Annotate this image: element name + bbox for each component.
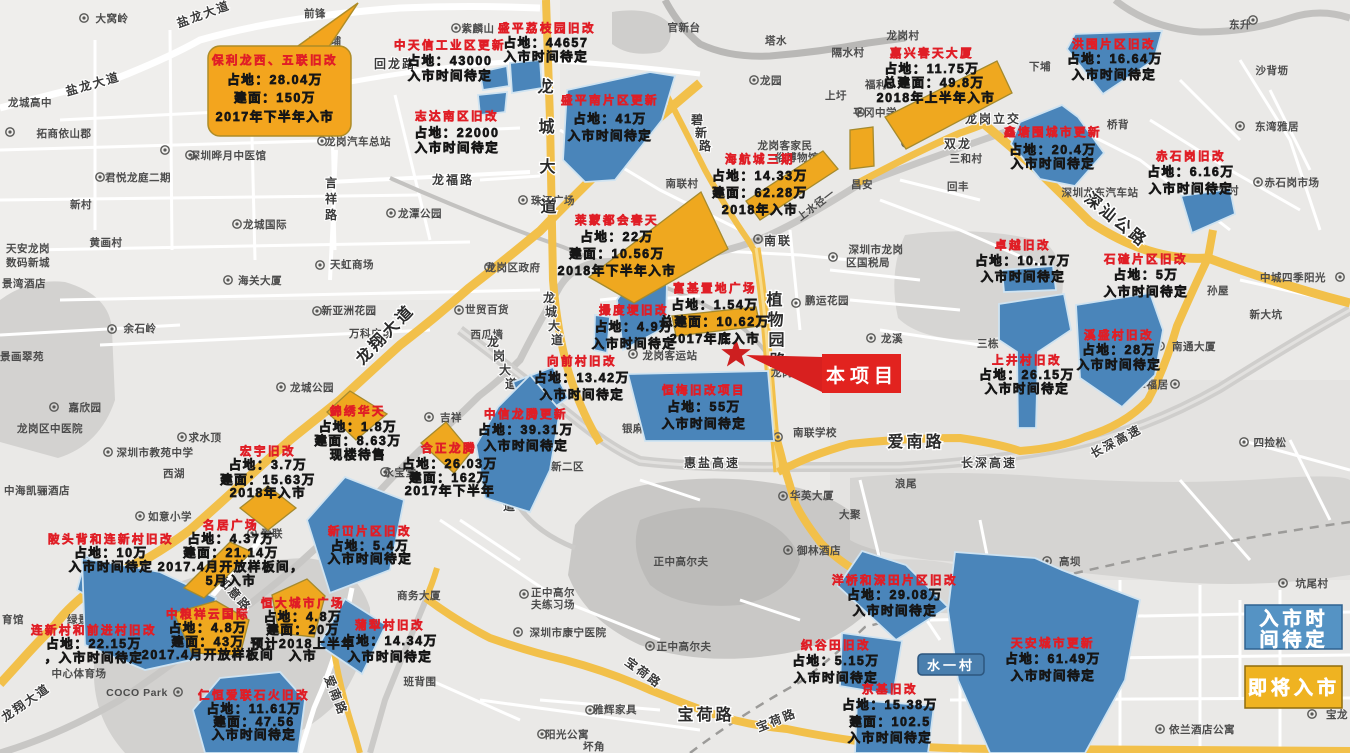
svg-text:吉祥: 吉祥 xyxy=(440,411,462,424)
svg-text:占地：26.03万: 占地：26.03万 xyxy=(402,456,498,471)
svg-text:2017年下半年: 2017年下半年 xyxy=(405,483,496,498)
svg-text:占地：44657: 占地：44657 xyxy=(503,35,588,50)
svg-text:恒梅旧改项目: 恒梅旧改项目 xyxy=(662,383,746,397)
svg-text:岗: 岗 xyxy=(493,349,507,363)
svg-text:世贸百货: 世贸百货 xyxy=(465,303,509,316)
svg-text:溪盛村旧改: 溪盛村旧改 xyxy=(1084,328,1154,342)
svg-text:双龙: 双龙 xyxy=(944,136,972,151)
svg-text:宝龙: 宝龙 xyxy=(1326,708,1348,721)
svg-text:占地：22万: 占地：22万 xyxy=(580,229,654,244)
svg-text:2018年入市: 2018年入市 xyxy=(722,202,799,217)
svg-text:入市时间待定: 入市时间待定 xyxy=(1104,284,1189,299)
svg-text:深圳晔月中医馆: 深圳晔月中医馆 xyxy=(190,149,267,162)
svg-text:占地：4.9万: 占地：4.9万 xyxy=(595,319,674,334)
svg-text:依兰酒店公寓: 依兰酒店公寓 xyxy=(1169,723,1235,736)
svg-text:求水顶: 求水顶 xyxy=(189,431,222,444)
svg-text:余石岭: 余石岭 xyxy=(123,322,157,335)
svg-text:大: 大 xyxy=(499,362,513,377)
svg-text:四捡松: 四捡松 xyxy=(1254,436,1287,449)
svg-text:建面：15.63万: 建面：15.63万 xyxy=(220,472,316,487)
svg-text:占地：14.33万: 占地：14.33万 xyxy=(712,168,808,183)
svg-text:海关大厦: 海关大厦 xyxy=(238,274,282,287)
svg-text:占地：61.49万: 占地：61.49万 xyxy=(1005,651,1101,666)
svg-text:建面：8.63万: 建面：8.63万 xyxy=(314,433,401,448)
svg-text:中海凯骊酒店: 中海凯骊酒店 xyxy=(4,484,70,497)
svg-text:三栋: 三栋 xyxy=(977,337,999,350)
svg-text:鹏运花园: 鹏运花园 xyxy=(805,294,849,307)
svg-text:盛平荔枝园旧改: 盛平荔枝园旧改 xyxy=(498,21,596,35)
svg-text:建面：10.56万: 建面：10.56万 xyxy=(569,246,665,261)
svg-text:龙: 龙 xyxy=(543,290,557,305)
svg-text:嘉欣园: 嘉欣园 xyxy=(68,401,102,414)
svg-text:建面：102.5: 建面：102.5 xyxy=(849,714,931,729)
svg-text:拓商依山郡: 拓商依山郡 xyxy=(37,127,92,140)
svg-text:占地：11.61万: 占地：11.61万 xyxy=(207,701,302,716)
svg-text:东升: 东升 xyxy=(1229,18,1251,31)
svg-text:建面：162万: 建面：162万 xyxy=(409,470,491,485)
svg-text:占地：5万: 占地：5万 xyxy=(1114,267,1179,282)
svg-text:占地：5.4万: 占地：5.4万 xyxy=(331,538,410,553)
svg-text:龙城公园: 龙城公园 xyxy=(289,381,334,394)
svg-text:富基置地广场: 富基置地广场 xyxy=(673,281,757,295)
svg-text:龙岗客家民: 龙岗客家民 xyxy=(757,139,813,152)
svg-text:中粮祥云国际: 中粮祥云国际 xyxy=(166,607,250,621)
svg-text:建面：20万: 建面：20万 xyxy=(266,622,340,637)
svg-text:中城四季阳光: 中城四季阳光 xyxy=(1260,271,1326,284)
svg-text:入市时间待定: 入市时间待定 xyxy=(328,551,413,566)
svg-text:入市时间待定: 入市时间待定 xyxy=(69,559,154,574)
svg-text:撮度埂旧改: 撮度埂旧改 xyxy=(599,303,669,317)
svg-text:坑尾村: 坑尾村 xyxy=(1296,577,1329,590)
svg-text:城: 城 xyxy=(545,304,559,319)
svg-text:入市时间待定: 入市时间待定 xyxy=(540,387,625,402)
svg-text:龙: 龙 xyxy=(487,334,501,349)
svg-text:龙溪: 龙溪 xyxy=(880,332,903,345)
svg-text:西湖: 西湖 xyxy=(163,467,185,480)
svg-text:嘉兴春天大厦: 嘉兴春天大厦 xyxy=(889,46,974,60)
svg-text:莱蒙都会春天: 莱蒙都会春天 xyxy=(575,213,659,227)
svg-text:正中高尔夫: 正中高尔夫 xyxy=(657,640,712,653)
svg-text:景湾酒店: 景湾酒店 xyxy=(1,277,46,290)
svg-text:夫练习场: 夫练习场 xyxy=(531,598,575,611)
svg-text:盛平南片区更新: 盛平南片区更新 xyxy=(561,93,659,107)
svg-text:入市时间待定: 入市时间待定 xyxy=(662,416,747,431)
svg-text:惠盐高速: 惠盐高速 xyxy=(684,455,740,470)
svg-text:入市时间待定: 入市时间待定 xyxy=(484,438,569,453)
svg-text:龙福路: 龙福路 xyxy=(432,172,474,187)
svg-text:景画翠苑: 景画翠苑 xyxy=(0,350,44,363)
svg-text:君悦龙庭二期: 君悦龙庭二期 xyxy=(105,171,171,184)
svg-text:正中高尔: 正中高尔 xyxy=(531,586,575,599)
svg-text:陂头背和连新村旧改: 陂头背和连新村旧改 xyxy=(48,532,174,546)
svg-text:占地：10.17万: 占地：10.17万 xyxy=(975,253,1071,268)
svg-text:珠江广场: 珠江广场 xyxy=(531,194,575,207)
svg-text:入市时间待定: 入市时间待定 xyxy=(981,269,1066,284)
svg-text:占地：4.37万: 占地：4.37万 xyxy=(187,531,274,546)
svg-text:高坝: 高坝 xyxy=(1059,555,1081,568)
svg-text:入市时间待定: 入市时间待定 xyxy=(408,68,493,83)
svg-text:织谷田旧改: 织谷田旧改 xyxy=(801,638,871,652)
svg-text:京基旧改: 京基旧改 xyxy=(862,682,918,696)
svg-text:如意小学: 如意小学 xyxy=(148,510,192,523)
svg-text:大聚: 大聚 xyxy=(839,508,861,521)
svg-text:总建面：10.62万: 总建面：10.62万 xyxy=(660,314,770,329)
svg-text:入市时间待定: 入市时间待定 xyxy=(1011,668,1096,683)
svg-text:2018年上半年入市: 2018年上半年入市 xyxy=(877,90,996,105)
svg-text:龙城国际: 龙城国际 xyxy=(242,218,287,231)
svg-text:东湾雅居: 东湾雅居 xyxy=(1255,120,1299,133)
svg-text:正中高尔夫: 正中高尔夫 xyxy=(654,555,709,568)
svg-text:入市时间待定: 入市时间待定 xyxy=(1077,357,1162,372)
svg-text:大窝岭: 大窝岭 xyxy=(96,12,129,25)
svg-text:赤石岗市场: 赤石岗市场 xyxy=(1265,176,1320,189)
svg-text:入市时间待定: 入市时间待定 xyxy=(1011,156,1096,171)
svg-text:园: 园 xyxy=(768,331,787,349)
svg-text:2018年入市: 2018年入市 xyxy=(230,485,307,500)
svg-text:新亚洲花园: 新亚洲花园 xyxy=(322,304,377,317)
svg-text:爱南路: 爱南路 xyxy=(887,432,944,451)
svg-text:路: 路 xyxy=(325,207,339,222)
svg-text:连新村和前进村旧改: 连新村和前进村旧改 xyxy=(31,623,157,637)
svg-text:占地：6.16万: 占地：6.16万 xyxy=(1147,164,1234,179)
svg-text:占地：22.15万: 占地：22.15万 xyxy=(46,636,142,651)
svg-text:道: 道 xyxy=(551,332,565,347)
svg-text:言: 言 xyxy=(325,175,339,190)
svg-text:上圩: 上圩 xyxy=(825,89,847,102)
svg-text:占地：43000: 占地：43000 xyxy=(407,53,492,68)
svg-text:黄画村: 黄画村 xyxy=(90,236,123,249)
svg-text:数码新城: 数码新城 xyxy=(5,256,50,269)
svg-text:占地：14.34万: 占地：14.34万 xyxy=(342,633,438,648)
svg-text:龙岗汽车总站: 龙岗汽车总站 xyxy=(324,135,391,148)
svg-text:龙岗区中医院: 龙岗区中医院 xyxy=(16,422,83,435)
svg-text:深圳市龙岗: 深圳市龙岗 xyxy=(849,243,904,256)
svg-text:入市时间待定: 入市时间待定 xyxy=(504,49,589,64)
svg-text:龙岗区政府: 龙岗区政府 xyxy=(485,261,541,274)
svg-text:入市时间待定: 入市时间待定 xyxy=(415,140,500,155)
svg-text:名居广场: 名居广场 xyxy=(203,518,259,532)
svg-text:班背围: 班背围 xyxy=(404,675,437,688)
svg-text:区国税局: 区国税局 xyxy=(846,256,890,269)
svg-text:宝荷路: 宝荷路 xyxy=(677,705,734,724)
svg-text:占地：5.15万: 占地：5.15万 xyxy=(792,653,879,668)
svg-text:占地：39.31万: 占地：39.31万 xyxy=(478,422,574,437)
svg-text:入市时间待定: 入市时间待定 xyxy=(592,336,677,351)
svg-text:占地：29.08万: 占地：29.08万 xyxy=(847,587,943,602)
svg-text:占地：3.7万: 占地：3.7万 xyxy=(229,457,308,472)
svg-text:入市时: 入市时 xyxy=(1259,607,1328,630)
svg-text:卓越旧改: 卓越旧改 xyxy=(995,238,1051,252)
svg-text:志达南区旧改: 志达南区旧改 xyxy=(415,109,499,123)
svg-text:昌安: 昌安 xyxy=(851,178,873,191)
svg-text:碧: 碧 xyxy=(690,112,705,127)
svg-text:坏角: 坏角 xyxy=(583,740,605,753)
svg-text:即将入市: 即将入市 xyxy=(1248,676,1340,699)
svg-text:入市时间待定: 入市时间待定 xyxy=(985,381,1070,396)
svg-text:龙潭公园: 龙潭公园 xyxy=(397,207,442,220)
svg-text:御林酒店: 御林酒店 xyxy=(796,544,841,557)
svg-text:深圳市康宁医院: 深圳市康宁医院 xyxy=(530,626,607,639)
svg-text:占地：13.42万: 占地：13.42万 xyxy=(534,370,630,385)
svg-text:占地：26.15万: 占地：26.15万 xyxy=(979,367,1075,382)
svg-text:占地：28万: 占地：28万 xyxy=(1082,342,1156,357)
svg-text:占地：11.75万: 占地：11.75万 xyxy=(885,61,980,76)
svg-text:赤石岗旧改: 赤石岗旧改 xyxy=(1156,149,1226,163)
svg-text:紫麟山: 紫麟山 xyxy=(462,22,495,35)
svg-text:仁恒爱联石火旧改: 仁恒爱联石火旧改 xyxy=(198,688,310,702)
svg-text:入市时间待定: 入市时间待定 xyxy=(848,730,933,745)
svg-text:占地：15.38万: 占地：15.38万 xyxy=(842,697,938,712)
svg-text:大: 大 xyxy=(548,318,562,333)
svg-text:建面：21.14万: 建面：21.14万 xyxy=(183,545,279,560)
svg-text:路: 路 xyxy=(699,138,713,153)
svg-text:育馆: 育馆 xyxy=(2,613,24,626)
svg-text:海航城三期: 海航城三期 xyxy=(725,152,795,166)
svg-text:入市时间待定: 入市时间待定 xyxy=(794,670,879,685)
svg-text:入市: 入市 xyxy=(289,648,317,663)
svg-text:中心体育场: 中心体育场 xyxy=(52,667,107,680)
svg-text:占地：20.4万: 占地：20.4万 xyxy=(1009,142,1096,157)
svg-text:占地：55万: 占地：55万 xyxy=(667,399,741,414)
svg-text:孙屋: 孙屋 xyxy=(1207,284,1229,297)
svg-text:2017年下半年入市: 2017年下半年入市 xyxy=(216,109,335,124)
svg-text:COCO Park: COCO Park xyxy=(106,687,168,699)
svg-text:回丰: 回丰 xyxy=(947,180,969,193)
svg-text:鑫塘围城市更新: 鑫塘围城市更新 xyxy=(1003,125,1102,139)
svg-text:，入市时间待定: ，入市时间待定 xyxy=(45,650,144,665)
svg-text:大: 大 xyxy=(539,157,558,176)
svg-text:天虹商场: 天虹商场 xyxy=(330,258,374,271)
svg-text:入市时间待定: 入市时间待定 xyxy=(348,649,433,664)
svg-text:入市时间待定: 入市时间待定 xyxy=(568,128,653,143)
svg-text:宏宇旧改: 宏宇旧改 xyxy=(240,444,296,458)
svg-text:隔水村: 隔水村 xyxy=(832,46,865,59)
svg-text:中天信工业区更新: 中天信工业区更新 xyxy=(394,38,506,52)
svg-text:入市时间待定: 入市时间待定 xyxy=(1072,67,1157,82)
svg-text:龙园: 龙园 xyxy=(759,74,782,87)
svg-text:官新台: 官新台 xyxy=(668,21,701,34)
svg-text:建面：150万: 建面：150万 xyxy=(234,90,316,105)
svg-text:入市时间待定: 入市时间待定 xyxy=(853,603,938,618)
svg-text:南联: 南联 xyxy=(764,233,792,248)
svg-text:洪围片区旧改: 洪围片区旧改 xyxy=(1072,37,1156,51)
svg-text:祥: 祥 xyxy=(325,191,339,206)
svg-text:上井村旧改: 上井村旧改 xyxy=(992,353,1062,367)
svg-text:龙城高中: 龙城高中 xyxy=(7,96,52,109)
svg-text:南通大厦: 南通大厦 xyxy=(1172,340,1216,353)
svg-text:占地：1.54万: 占地：1.54万 xyxy=(671,297,758,312)
svg-text:入市时间待定: 入市时间待定 xyxy=(212,727,297,742)
svg-text:2017.4月开放样板间，: 2017.4月开放样板间， xyxy=(158,559,305,574)
svg-text:占地：41万: 占地：41万 xyxy=(573,111,647,126)
svg-text:占地：4.8万: 占地：4.8万 xyxy=(264,609,343,624)
svg-text:三和村: 三和村 xyxy=(950,152,983,165)
svg-text:南联学校: 南联学校 xyxy=(793,426,837,439)
svg-text:石碴片区旧改: 石碴片区旧改 xyxy=(1103,252,1188,266)
svg-text:南联村: 南联村 xyxy=(666,177,699,190)
svg-text:入市时间待定: 入市时间待定 xyxy=(1149,181,1234,196)
svg-text:恒大城市广场: 恒大城市广场 xyxy=(261,596,345,610)
svg-text:新: 新 xyxy=(695,125,709,140)
svg-text:物: 物 xyxy=(767,310,786,329)
svg-text:洋桥和深田片区旧改: 洋桥和深田片区旧改 xyxy=(832,573,958,587)
svg-text:商务大厦: 商务大厦 xyxy=(397,589,441,602)
svg-text:占地：28.04万: 占地：28.04万 xyxy=(227,72,323,87)
svg-text:深圳市教苑中学: 深圳市教苑中学 xyxy=(117,446,194,459)
svg-text:龙岗村: 龙岗村 xyxy=(886,29,920,42)
svg-text:水一村: 水一村 xyxy=(927,658,975,673)
svg-text:建面：43万: 建面：43万 xyxy=(171,634,245,649)
svg-text:蒲犁村旧改: 蒲犁村旧改 xyxy=(355,618,425,632)
svg-text:下埔: 下埔 xyxy=(1029,60,1051,73)
svg-text:保利龙西、五联旧改: 保利龙西、五联旧改 xyxy=(211,53,338,67)
svg-text:雅辉家具: 雅辉家具 xyxy=(593,703,637,716)
svg-text:占地：16.64万: 占地：16.64万 xyxy=(1067,51,1163,66)
svg-text:城: 城 xyxy=(538,118,557,136)
svg-text:间待定: 间待定 xyxy=(1259,628,1328,651)
svg-text:塔水: 塔水 xyxy=(765,34,787,47)
svg-text:新冚片区旧改: 新冚片区旧改 xyxy=(328,524,412,538)
svg-text:占地：1.8万: 占地：1.8万 xyxy=(319,419,398,434)
svg-text:天安龙岗: 天安龙岗 xyxy=(6,242,50,255)
svg-text:向前村旧改: 向前村旧改 xyxy=(547,354,617,368)
svg-text:桥背: 桥背 xyxy=(1107,118,1129,131)
svg-text:中信龙腾更新: 中信龙腾更新 xyxy=(484,407,568,421)
svg-text:占地：4.8万: 占地：4.8万 xyxy=(169,620,248,635)
svg-text:植: 植 xyxy=(765,290,785,309)
svg-text:新大坑: 新大坑 xyxy=(1250,308,1283,321)
svg-text:长深高速: 长深高速 xyxy=(961,455,1017,470)
svg-text:占地：10万: 占地：10万 xyxy=(74,545,148,560)
svg-text:5月入市: 5月入市 xyxy=(206,573,257,588)
svg-text:华英大厦: 华英大厦 xyxy=(790,489,834,502)
svg-text:现楼待售: 现楼待售 xyxy=(330,447,386,462)
svg-text:2018年下半年入市: 2018年下半年入市 xyxy=(558,263,677,278)
svg-text:天安城市更新: 天安城市更新 xyxy=(1011,636,1095,650)
svg-text:建面：47.56: 建面：47.56 xyxy=(213,714,295,729)
svg-text:2017年底入市: 2017年底入市 xyxy=(670,331,761,346)
svg-text:新村: 新村 xyxy=(70,198,92,211)
svg-text:占地：22000: 占地：22000 xyxy=(414,125,499,140)
svg-text:本项目: 本项目 xyxy=(826,364,898,387)
svg-text:浪尾: 浪尾 xyxy=(895,477,917,490)
svg-text:建面：62.28万: 建面：62.28万 xyxy=(712,185,808,200)
svg-text:前锋: 前锋 xyxy=(304,7,326,20)
svg-text:总建面：49.8万: 总建面：49.8万 xyxy=(883,75,984,90)
svg-text:阳光公寓: 阳光公寓 xyxy=(545,728,589,741)
svg-text:沙背坜: 沙背坜 xyxy=(1256,64,1289,77)
svg-text:錦绣华天: 錦绣华天 xyxy=(329,404,386,418)
svg-text:合正龙腾: 合正龙腾 xyxy=(421,441,477,455)
